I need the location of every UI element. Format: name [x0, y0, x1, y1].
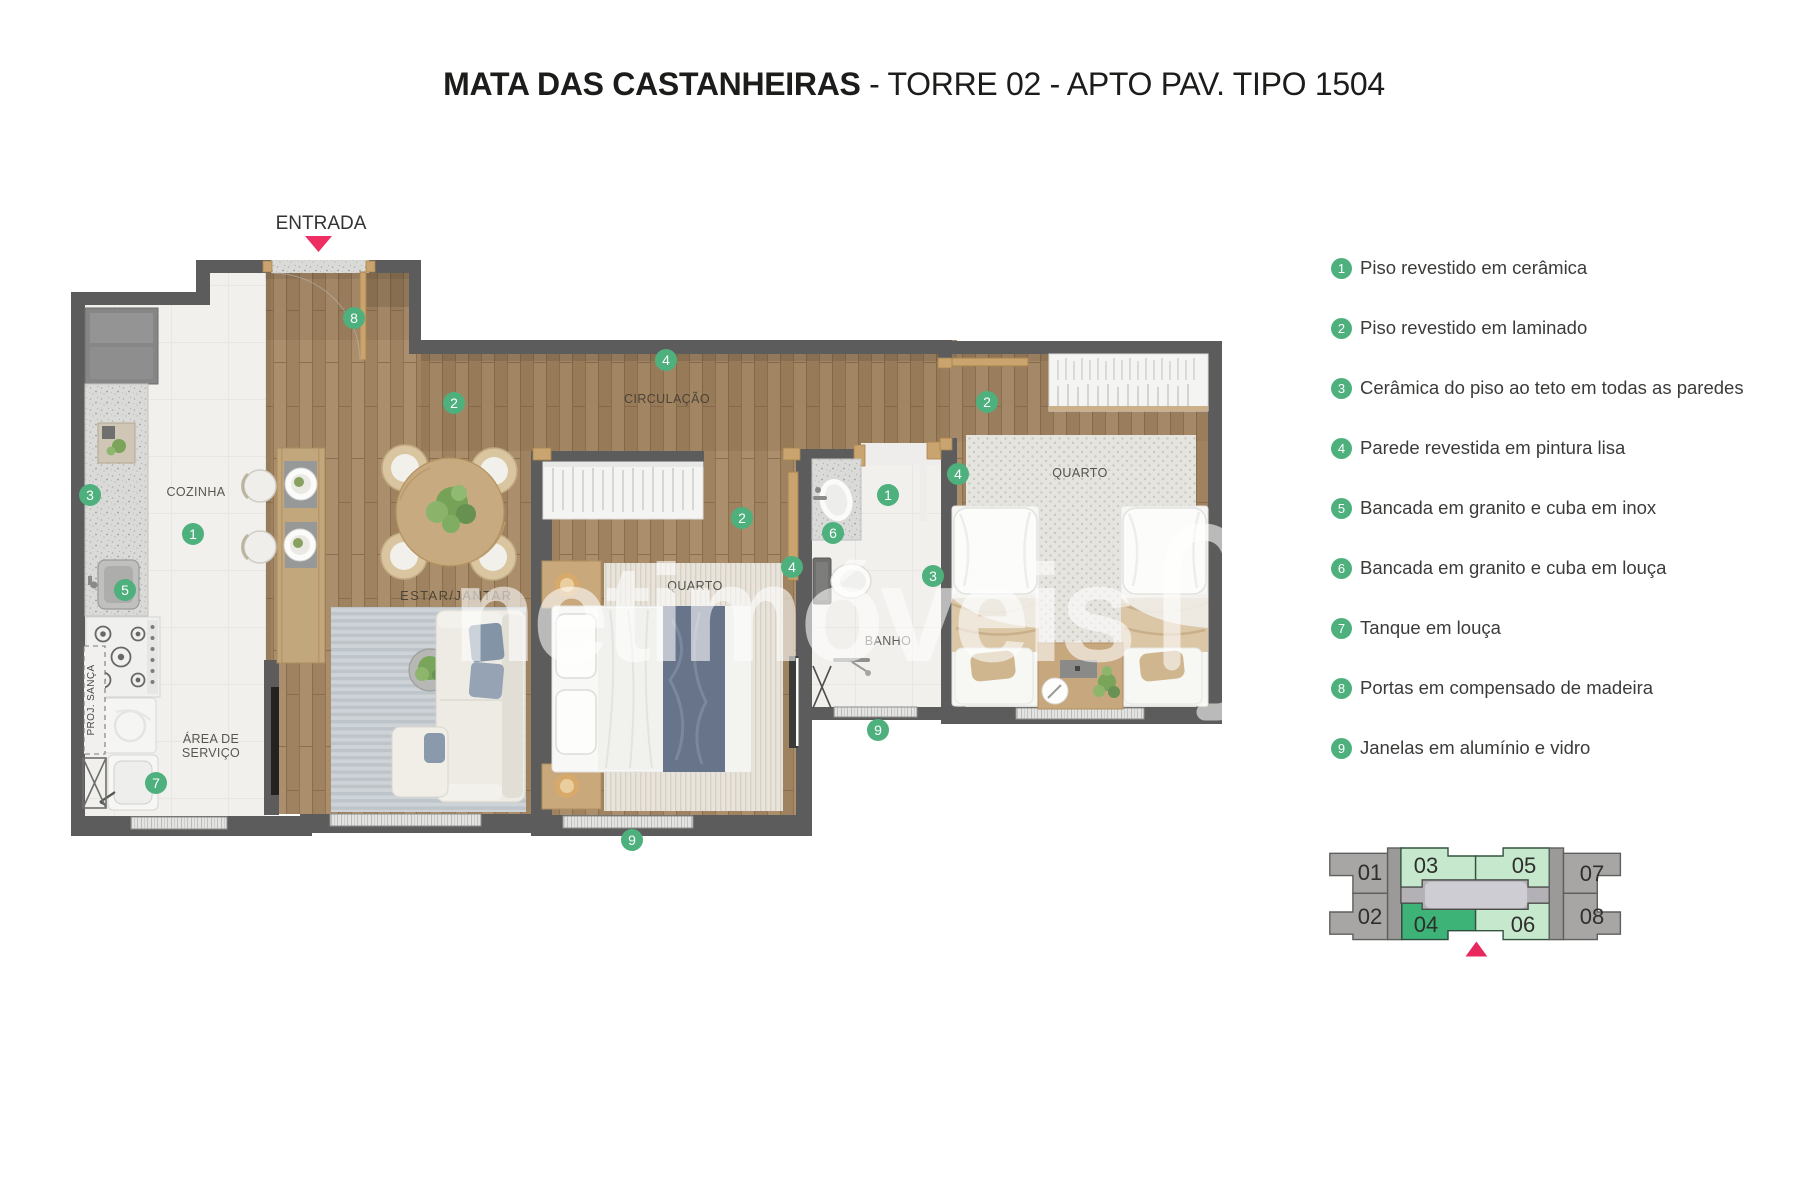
svg-text:8: 8 [350, 310, 358, 326]
svg-text:3: 3 [929, 568, 937, 584]
svg-text:7: 7 [152, 775, 160, 791]
svg-text:COZINHA: COZINHA [166, 485, 225, 499]
svg-text:2: 2 [450, 395, 458, 411]
svg-text:PROJ. SANÇA: PROJ. SANÇA [86, 664, 97, 735]
svg-text:07: 07 [1580, 861, 1604, 886]
svg-text:9: 9 [874, 722, 882, 738]
svg-text:06: 06 [1511, 912, 1535, 937]
svg-text:04: 04 [1414, 912, 1438, 937]
svg-text:1: 1 [189, 526, 197, 542]
svg-text:4: 4 [788, 559, 796, 575]
svg-text:2: 2 [738, 510, 746, 526]
svg-text:5: 5 [121, 582, 129, 598]
svg-text:9: 9 [628, 832, 636, 848]
svg-text:ÁREA DE: ÁREA DE [183, 731, 239, 746]
svg-text:QUARTO: QUARTO [1052, 466, 1107, 480]
svg-text:02: 02 [1358, 904, 1382, 929]
svg-text:CIRCULAÇÃO: CIRCULAÇÃO [624, 392, 710, 406]
svg-text:05: 05 [1512, 853, 1536, 878]
svg-text:SERVIÇO: SERVIÇO [182, 746, 240, 760]
svg-text:1: 1 [884, 487, 892, 503]
svg-text:08: 08 [1580, 904, 1604, 929]
svg-text:4: 4 [954, 466, 962, 482]
svg-text:2: 2 [983, 394, 991, 410]
svg-text:6: 6 [829, 525, 837, 541]
svg-text:ENTRADA: ENTRADA [276, 213, 367, 234]
svg-text:01: 01 [1358, 860, 1382, 885]
svg-text:3: 3 [86, 487, 94, 503]
svg-text:03: 03 [1414, 853, 1438, 878]
svg-text:4: 4 [662, 352, 670, 368]
